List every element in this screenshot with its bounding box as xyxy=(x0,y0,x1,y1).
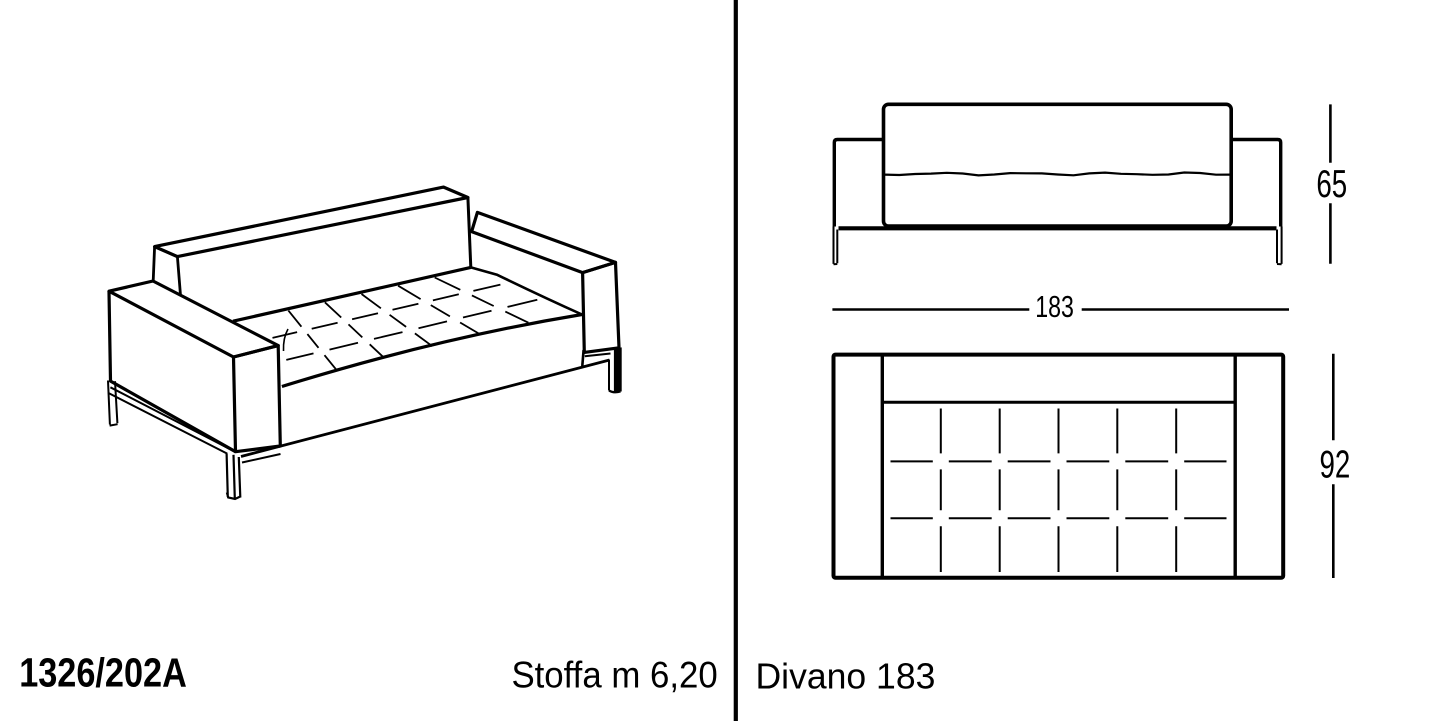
svg-text:183: 183 xyxy=(1035,289,1074,324)
svg-text:65: 65 xyxy=(1316,164,1347,206)
svg-text:Divano 183: Divano 183 xyxy=(756,655,936,696)
svg-text:Stoffa m 6,20: Stoffa m 6,20 xyxy=(511,653,717,696)
svg-text:92: 92 xyxy=(1319,444,1350,486)
svg-text:1326/202A: 1326/202A xyxy=(19,650,187,695)
